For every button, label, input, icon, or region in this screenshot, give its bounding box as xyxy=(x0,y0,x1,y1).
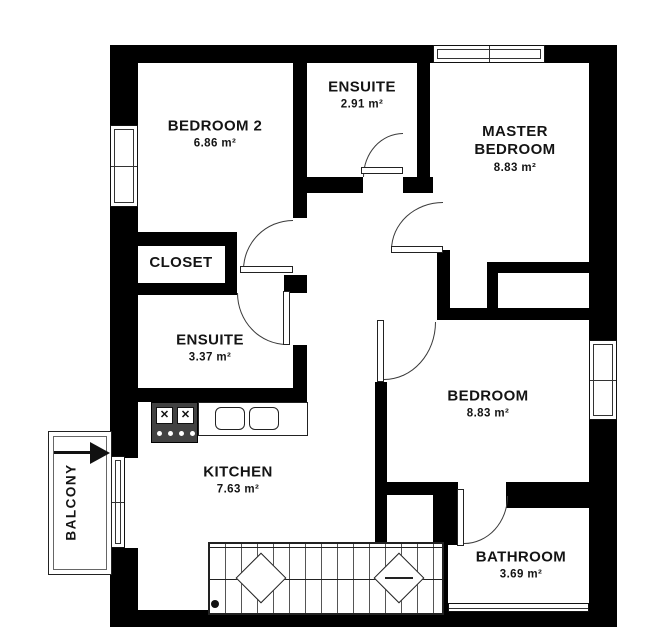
wall-segment xyxy=(589,420,617,617)
room-label-kitchen: KITCHEN 7.63 m² xyxy=(203,463,272,496)
room-label-ensuite-top: ENSUITE 2.91 m² xyxy=(328,78,396,111)
wall-segment xyxy=(506,482,589,508)
door-arc xyxy=(384,322,436,380)
door-arc xyxy=(237,293,287,345)
window xyxy=(589,340,617,420)
stove-knobs xyxy=(157,431,195,436)
room-label-closet: CLOSET xyxy=(149,254,212,272)
burner-icon: ✕ xyxy=(156,407,173,424)
wall-segment xyxy=(487,262,589,273)
balcony-door xyxy=(111,456,125,548)
door-arc xyxy=(243,220,293,270)
kitchen-counter xyxy=(198,402,308,436)
bathroom-window xyxy=(448,603,589,612)
wall-segment xyxy=(138,283,237,295)
wall-segment xyxy=(433,482,458,545)
door-leaf xyxy=(361,167,403,174)
wall-segment xyxy=(589,45,617,340)
stair-start-dot xyxy=(211,600,219,608)
wall-segment xyxy=(110,45,433,63)
room-label-bedroom: BEDROOM 8.83 m² xyxy=(447,387,528,420)
wall-segment xyxy=(110,548,138,617)
stair-dash xyxy=(385,577,413,579)
door-arc xyxy=(464,496,508,544)
door-leaf xyxy=(283,291,290,345)
wall-segment xyxy=(375,382,387,543)
room-label-master-bedroom: MASTER BEDROOM 8.83 m² xyxy=(464,123,566,175)
wall-segment xyxy=(293,177,363,193)
stove-icon: ✕ ✕ xyxy=(151,402,198,443)
sink-bowl-icon xyxy=(215,407,245,430)
entry-arrow-head-icon xyxy=(90,442,110,464)
wall-segment xyxy=(417,62,430,179)
wall-segment xyxy=(293,62,307,218)
door-leaf xyxy=(377,320,384,382)
room-label-balcony: BALCONY xyxy=(64,463,79,540)
window xyxy=(110,125,138,207)
door-leaf xyxy=(240,266,293,273)
sink-bowl-icon xyxy=(249,407,279,430)
wall-segment xyxy=(377,482,435,495)
door-arc xyxy=(391,202,443,250)
room-label-bedroom2: BEDROOM 2 6.86 m² xyxy=(168,117,262,150)
window xyxy=(433,45,545,63)
floor-plan: ✕ ✕ BALCONY BEDROOM 2 6.86 m² ENSUITE 2.… xyxy=(0,0,672,627)
wall-segment xyxy=(110,232,237,246)
door-leaf xyxy=(391,246,443,253)
burner-icon: ✕ xyxy=(177,407,194,424)
room-label-ensuite-lower: ENSUITE 3.37 m² xyxy=(176,331,244,364)
entry-arrow-icon xyxy=(54,451,94,454)
door-leaf xyxy=(457,489,464,546)
room-label-bathroom: BATHROOM 3.69 m² xyxy=(476,548,566,581)
wall-segment xyxy=(138,388,307,402)
wall-segment xyxy=(440,308,593,320)
wall-segment xyxy=(403,177,433,193)
